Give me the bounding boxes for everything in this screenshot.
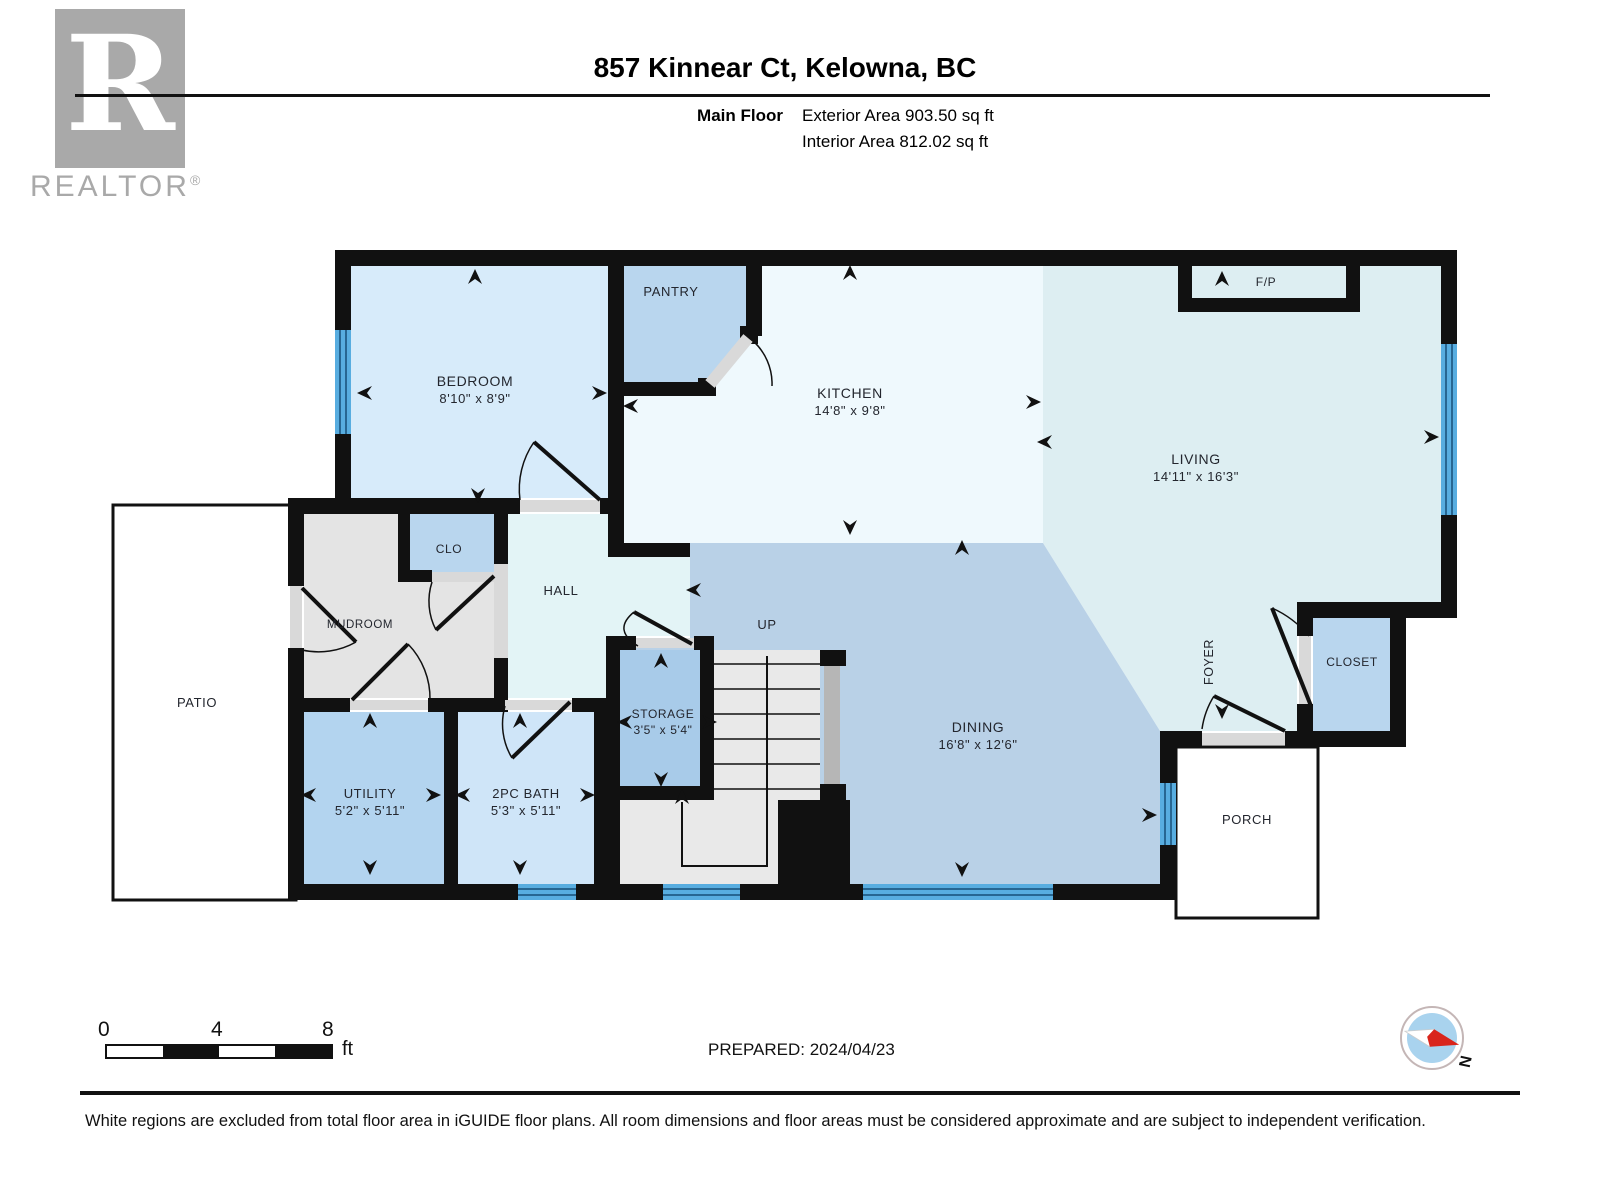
foyer-label: FOYER: [1202, 639, 1216, 685]
stair-landing-area: [620, 800, 778, 884]
dining-side-window: [1160, 783, 1176, 845]
stair-rail: [824, 666, 840, 784]
patio-label: PATIO: [177, 695, 217, 710]
compass-north-label: N: [1455, 1054, 1474, 1069]
scale-tick-4: 4: [211, 1018, 223, 1042]
bedroom-dims: 8'10" x 8'9": [439, 391, 510, 406]
storage-dims: 3'5" x 5'4": [633, 723, 692, 737]
hall-label: HALL: [544, 583, 579, 598]
bath-label: 2PC BATH: [492, 786, 559, 801]
living-dims: 14'11" x 16'3": [1153, 469, 1239, 484]
dining-dims: 16'8" x 12'6": [938, 737, 1017, 752]
bath-window: [518, 884, 576, 900]
disclaimer-text: White regions are excluded from total fl…: [85, 1112, 1515, 1131]
fireplace-label: F/P: [1256, 275, 1276, 289]
stairs-up-label: UP: [757, 617, 776, 632]
scale-segment: [275, 1046, 331, 1057]
scale-segment: [163, 1046, 219, 1057]
porch-label: PORCH: [1222, 812, 1272, 827]
utility-label: UTILITY: [344, 786, 397, 801]
prepared-date: PREPARED: 2024/04/23: [708, 1040, 895, 1060]
kitchen-label: KITCHEN: [817, 385, 883, 401]
bath-dims: 5'3" x 5'11": [491, 803, 561, 818]
porch-area: [1176, 747, 1318, 918]
scale-tick-0: 0: [98, 1018, 110, 1042]
mudroom-label: MUDROOM: [327, 619, 393, 631]
floor-plan: BEDROOM 8'10" x 8'9" PANTRY KITCHEN 14'8…: [0, 0, 1600, 1200]
dining-label: DINING: [952, 719, 1005, 735]
scale-bar: [105, 1044, 333, 1059]
living-label: LIVING: [1171, 451, 1221, 467]
utility-dims: 5'2" x 5'11": [335, 803, 405, 818]
pantry-label: PANTRY: [643, 284, 698, 299]
bedroom-label: BEDROOM: [437, 373, 514, 389]
clo-label: CLO: [436, 542, 462, 556]
closet-label: CLOSET: [1326, 655, 1378, 669]
living-window: [1441, 344, 1457, 515]
hall-area: [508, 514, 620, 698]
footer-divider-line: [80, 1091, 1520, 1095]
compass-icon: N: [1401, 1007, 1474, 1069]
scale-tick-8: 8: [322, 1018, 334, 1042]
bedroom-window: [335, 330, 351, 434]
landing-window: [663, 884, 740, 900]
scale-segment: [107, 1046, 163, 1057]
closet-area: [1313, 618, 1390, 731]
dining-window: [863, 884, 1053, 900]
kitchen-dims: 14'8" x 9'8": [814, 403, 885, 418]
scale-unit-label: ft: [342, 1038, 353, 1061]
storage-label: STORAGE: [632, 707, 695, 721]
scale-segment: [219, 1046, 275, 1057]
